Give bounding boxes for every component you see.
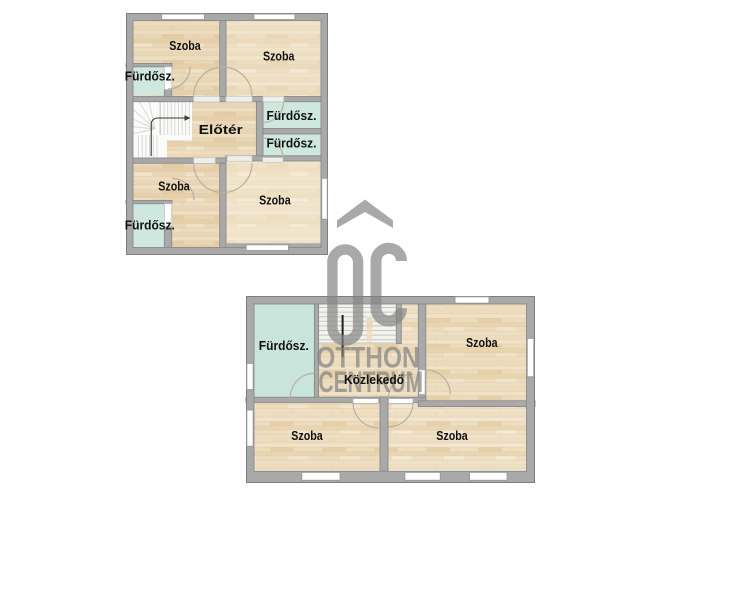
svg-text:Fürdősz.: Fürdősz.	[125, 219, 175, 233]
svg-text:Szoba: Szoba	[169, 39, 201, 53]
svg-text:Fürdősz.: Fürdősz.	[267, 137, 317, 151]
svg-text:Szoba: Szoba	[436, 429, 468, 443]
svg-text:Fürdősz.: Fürdősz.	[259, 339, 309, 353]
svg-text:Közlekedő: Közlekedő	[344, 373, 404, 387]
svg-text:Fürdősz.: Fürdősz.	[125, 69, 175, 83]
svg-text:Szoba: Szoba	[466, 336, 498, 350]
svg-text:Szoba: Szoba	[263, 49, 295, 63]
svg-text:Szoba: Szoba	[158, 179, 190, 193]
svg-text:Szoba: Szoba	[291, 429, 323, 443]
svg-text:Szoba: Szoba	[259, 193, 291, 207]
svg-text:Fürdősz.: Fürdősz.	[267, 109, 317, 123]
svg-text:Előtér: Előtér	[199, 123, 243, 137]
